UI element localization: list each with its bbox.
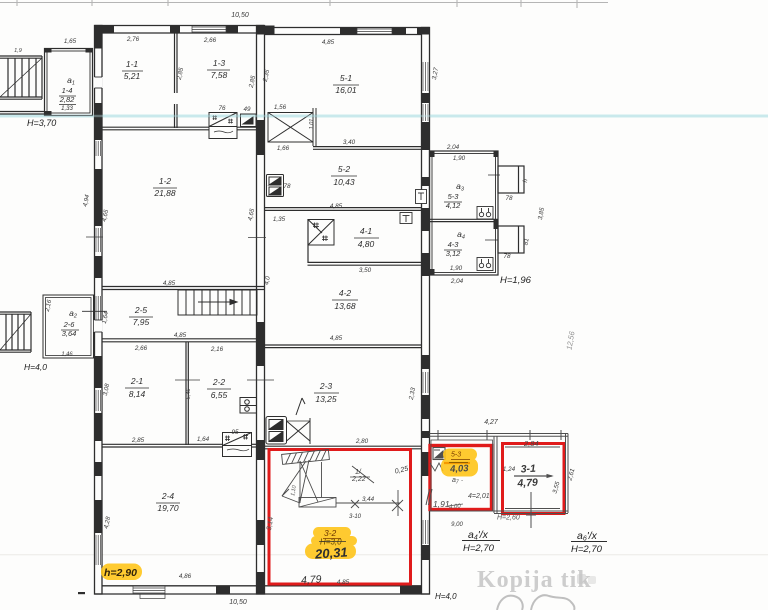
svg-text:-: - — [461, 478, 463, 484]
svg-text:2-5: 2-5 — [134, 305, 148, 315]
svg-text:1-1: 1-1 — [126, 59, 139, 69]
svg-text:4-2: 4-2 — [339, 288, 352, 298]
svg-text:Kopija tik: Kopija tik — [477, 567, 592, 593]
svg-text:4,79: 4,79 — [516, 477, 538, 490]
svg-text:10,50: 10,50 — [231, 12, 249, 19]
svg-text:4,85: 4,85 — [163, 280, 176, 287]
svg-text:1,64: 1,64 — [197, 436, 210, 443]
svg-text:H=4,0: H=4,0 — [24, 362, 47, 372]
svg-text:4,85: 4,85 — [322, 39, 335, 46]
svg-text:4,85: 4,85 — [330, 335, 343, 342]
svg-text:19,70: 19,70 — [157, 503, 179, 513]
svg-text:4-1: 4-1 — [360, 226, 373, 236]
svg-text:h=2,90: h=2,90 — [104, 567, 137, 579]
svg-text:3,50: 3,50 — [359, 267, 372, 274]
svg-text:5-3: 5-3 — [451, 452, 461, 459]
svg-text:4,79: 4,79 — [301, 573, 322, 586]
svg-text:H=4,0: H=4,0 — [435, 592, 457, 601]
svg-text:3-2: 3-2 — [324, 528, 337, 538]
svg-text:10,43: 10,43 — [333, 177, 355, 187]
svg-text:2,66: 2,66 — [203, 37, 217, 44]
svg-text:2,84: 2,84 — [523, 439, 539, 448]
svg-text:3,40: 3,40 — [343, 139, 356, 146]
svg-text:10,50: 10,50 — [229, 599, 247, 606]
svg-text:2,66: 2,66 — [134, 345, 148, 352]
svg-text:2,76: 2,76 — [126, 36, 140, 43]
svg-text:4-3: 4-3 — [448, 240, 460, 249]
svg-text:4=2,01: 4=2,01 — [468, 493, 490, 500]
svg-text:1,91: 1,91 — [433, 499, 450, 509]
svg-text:21,88: 21,88 — [153, 188, 176, 198]
svg-text:4,03: 4,03 — [449, 463, 470, 475]
svg-text:5,46: 5,46 — [186, 388, 192, 400]
svg-text:78: 78 — [283, 183, 291, 190]
svg-text:1,46: 1,46 — [61, 352, 73, 358]
svg-text:2-2: 2-2 — [212, 377, 226, 387]
svg-text:3,44: 3,44 — [362, 496, 375, 503]
svg-text:76: 76 — [218, 105, 226, 112]
svg-text:H=2,70: H=2,70 — [463, 543, 495, 554]
svg-text:a6'/x: a6'/x — [577, 530, 598, 543]
svg-text:49: 49 — [243, 106, 251, 113]
svg-text:7,95: 7,95 — [133, 317, 150, 327]
svg-text:5,21: 5,21 — [124, 71, 141, 81]
svg-text:3-1: 3-1 — [520, 463, 536, 476]
svg-text:1,90: 1,90 — [450, 265, 463, 272]
svg-text:2,85: 2,85 — [131, 437, 145, 444]
svg-text:6,55: 6,55 — [211, 390, 228, 400]
svg-text:3-10: 3-10 — [349, 514, 362, 520]
svg-text:81: 81 — [522, 238, 530, 246]
svg-text:7,58: 7,58 — [211, 70, 228, 80]
svg-text:H=2,60: H=2,60 — [497, 515, 520, 522]
svg-text:95: 95 — [231, 429, 239, 436]
svg-text:1,65: 1,65 — [64, 38, 77, 45]
svg-text:5-2: 5-2 — [338, 164, 351, 174]
svg-text:1,01: 1,01 — [309, 119, 315, 130]
svg-text:1,33: 1,33 — [61, 106, 73, 112]
svg-text:2,16: 2,16 — [210, 346, 224, 353]
svg-text:13,25: 13,25 — [315, 394, 337, 404]
svg-text:H=3,70: H=3,70 — [27, 118, 56, 128]
svg-text:4,85: 4,85 — [174, 332, 187, 339]
svg-text:8,14: 8,14 — [129, 389, 146, 399]
svg-text:H=1,96: H=1,96 — [500, 275, 532, 286]
svg-text:1,9: 1,9 — [14, 48, 22, 54]
svg-text:1,66: 1,66 — [277, 145, 290, 152]
svg-text:1-2: 1-2 — [159, 176, 172, 186]
svg-text:1,24: 1,24 — [503, 466, 516, 473]
svg-text:2,80: 2,80 — [355, 438, 369, 445]
svg-text:13,68: 13,68 — [334, 301, 356, 311]
svg-text:4,85: 4,85 — [337, 579, 350, 586]
svg-text:9,00: 9,00 — [451, 522, 463, 528]
svg-text:2-3: 2-3 — [319, 381, 333, 391]
svg-text:4,85: 4,85 — [330, 203, 343, 210]
svg-text:1,35: 1,35 — [273, 216, 286, 223]
svg-text:2-6: 2-6 — [63, 320, 76, 329]
svg-text:2-4: 2-4 — [161, 491, 175, 501]
svg-text:4,80: 4,80 — [358, 239, 375, 249]
svg-text:1-3: 1-3 — [213, 58, 226, 68]
svg-text:5-3: 5-3 — [448, 192, 460, 201]
svg-text:1,90: 1,90 — [453, 155, 466, 162]
svg-text:78: 78 — [505, 195, 513, 202]
svg-text:4,12: 4,12 — [446, 201, 461, 210]
svg-text:3,12: 3,12 — [446, 249, 461, 258]
svg-text:1-4: 1-4 — [62, 86, 73, 95]
svg-text:4,86: 4,86 — [179, 573, 192, 580]
svg-text:4,27: 4,27 — [484, 419, 499, 426]
svg-text:a4'/x: a4'/x — [468, 529, 489, 542]
svg-text:16,01: 16,01 — [335, 85, 357, 95]
svg-text:5-1: 5-1 — [340, 73, 353, 83]
svg-text:2,04: 2,04 — [446, 144, 460, 151]
svg-text:H=2,70: H=2,70 — [571, 544, 603, 555]
svg-text:2,04: 2,04 — [450, 278, 464, 285]
svg-text:78: 78 — [503, 253, 511, 260]
svg-text:1,56: 1,56 — [274, 104, 287, 111]
svg-text:20,31: 20,31 — [314, 544, 349, 561]
svg-text:2-1: 2-1 — [130, 376, 144, 386]
